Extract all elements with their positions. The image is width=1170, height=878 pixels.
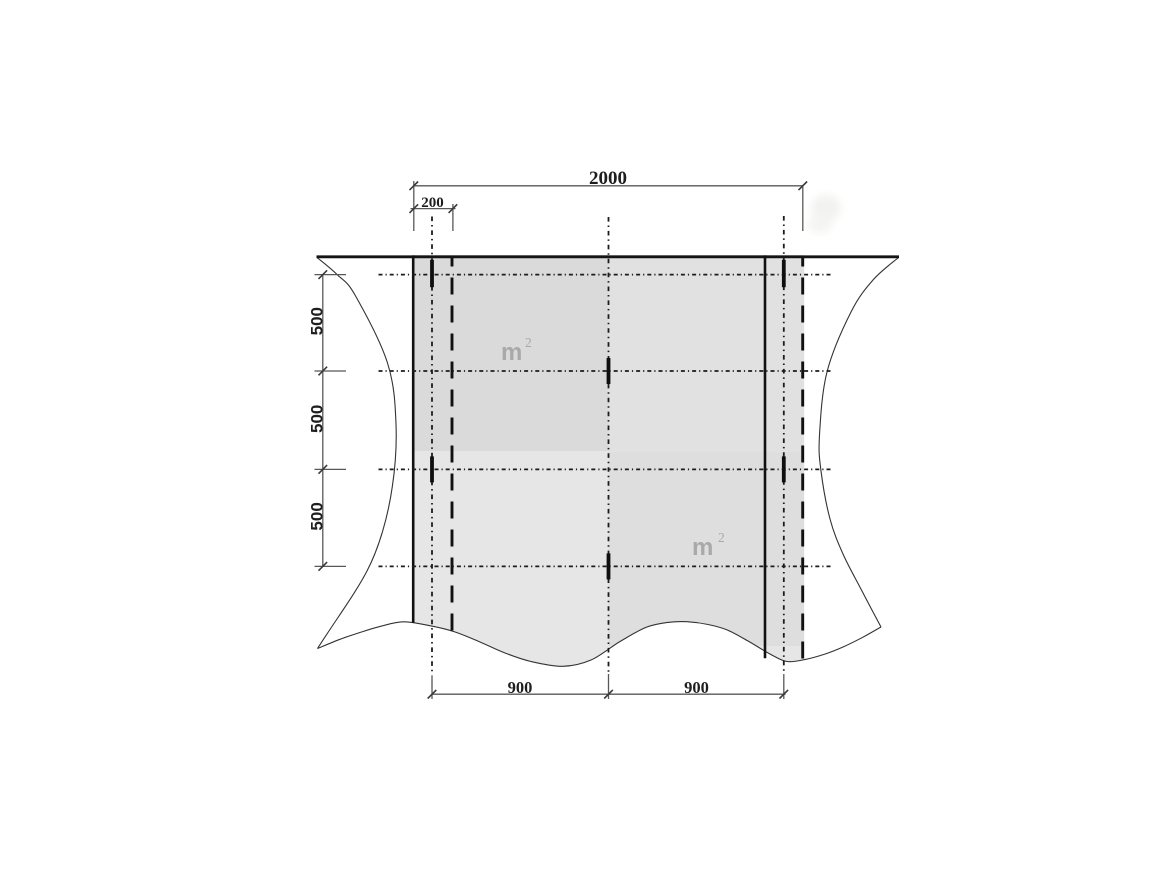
svg-text:900: 900 [508,678,533,697]
svg-text:200: 200 [421,195,444,211]
svg-text:m: m [692,534,713,561]
svg-text:500: 500 [308,502,327,530]
svg-text:2: 2 [525,335,532,350]
svg-text:2000: 2000 [589,168,627,189]
svg-text:500: 500 [308,307,327,335]
svg-text:2: 2 [718,530,725,545]
svg-text:m: m [501,339,522,366]
svg-text:500: 500 [308,405,327,433]
svg-text:900: 900 [684,678,709,697]
